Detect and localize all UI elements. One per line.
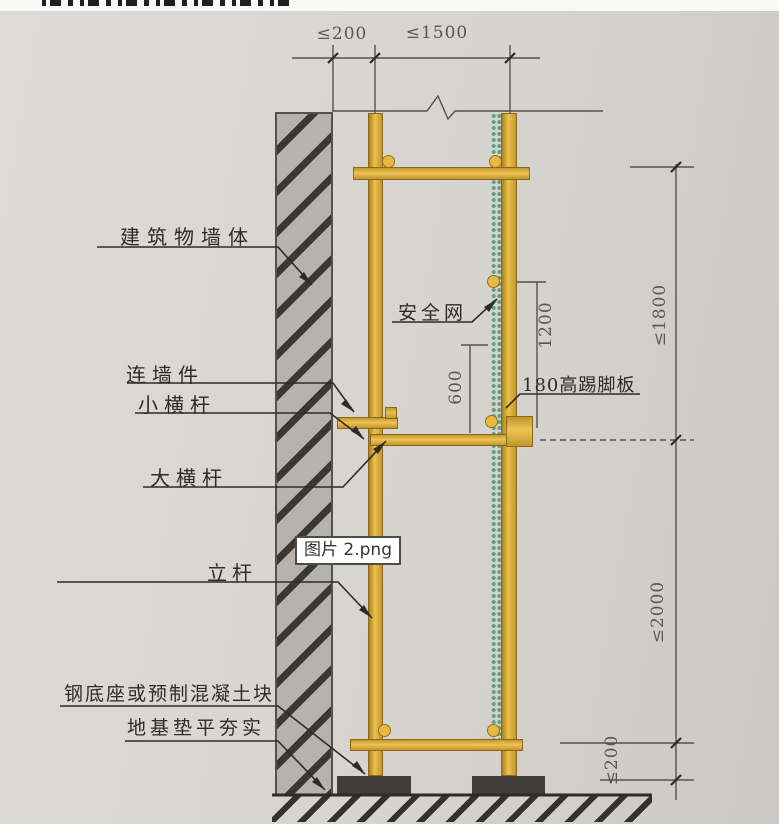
dim-top-bay: ≤1500 xyxy=(406,23,469,43)
label-building-wall: 建筑物墙体 xyxy=(120,221,255,250)
dim-right-1800: ≤1800 xyxy=(650,284,670,347)
label-foundation: 地基垫平夯实 xyxy=(127,713,265,740)
label-small-crossbar: 小横杆 xyxy=(138,389,216,418)
leader-arrowheads xyxy=(299,272,497,790)
label-wall-tie: 连墙件 xyxy=(126,359,204,388)
dimension-lines xyxy=(292,45,694,800)
label-steel-base: 钢底座或预制混凝土块 xyxy=(64,679,274,706)
label-safety-net: 安全网 xyxy=(398,298,467,325)
dimension-ticks xyxy=(328,53,681,785)
dim-midrail-600: 600 xyxy=(446,369,466,404)
dim-guardrail-1200: 1200 xyxy=(536,301,556,348)
label-standing-pole: 立杆 xyxy=(207,557,257,586)
dim-right-bottom-200: ≤200 xyxy=(602,735,622,786)
screenshot-canvas: 建筑物墙体 安全网 连墙件 小横杆 大横杆 180高踢脚板 立杆 钢底座或预制混… xyxy=(0,0,779,824)
label-main-ledger: 大横杆 xyxy=(150,462,228,491)
image-filename-overlay: 图片 2.png xyxy=(295,536,401,565)
dim-right-2000: ≤2000 xyxy=(648,581,668,644)
label-toe-board: 180高踢脚板 xyxy=(522,371,635,397)
dim-top-wall-gap: ≤200 xyxy=(317,24,368,44)
